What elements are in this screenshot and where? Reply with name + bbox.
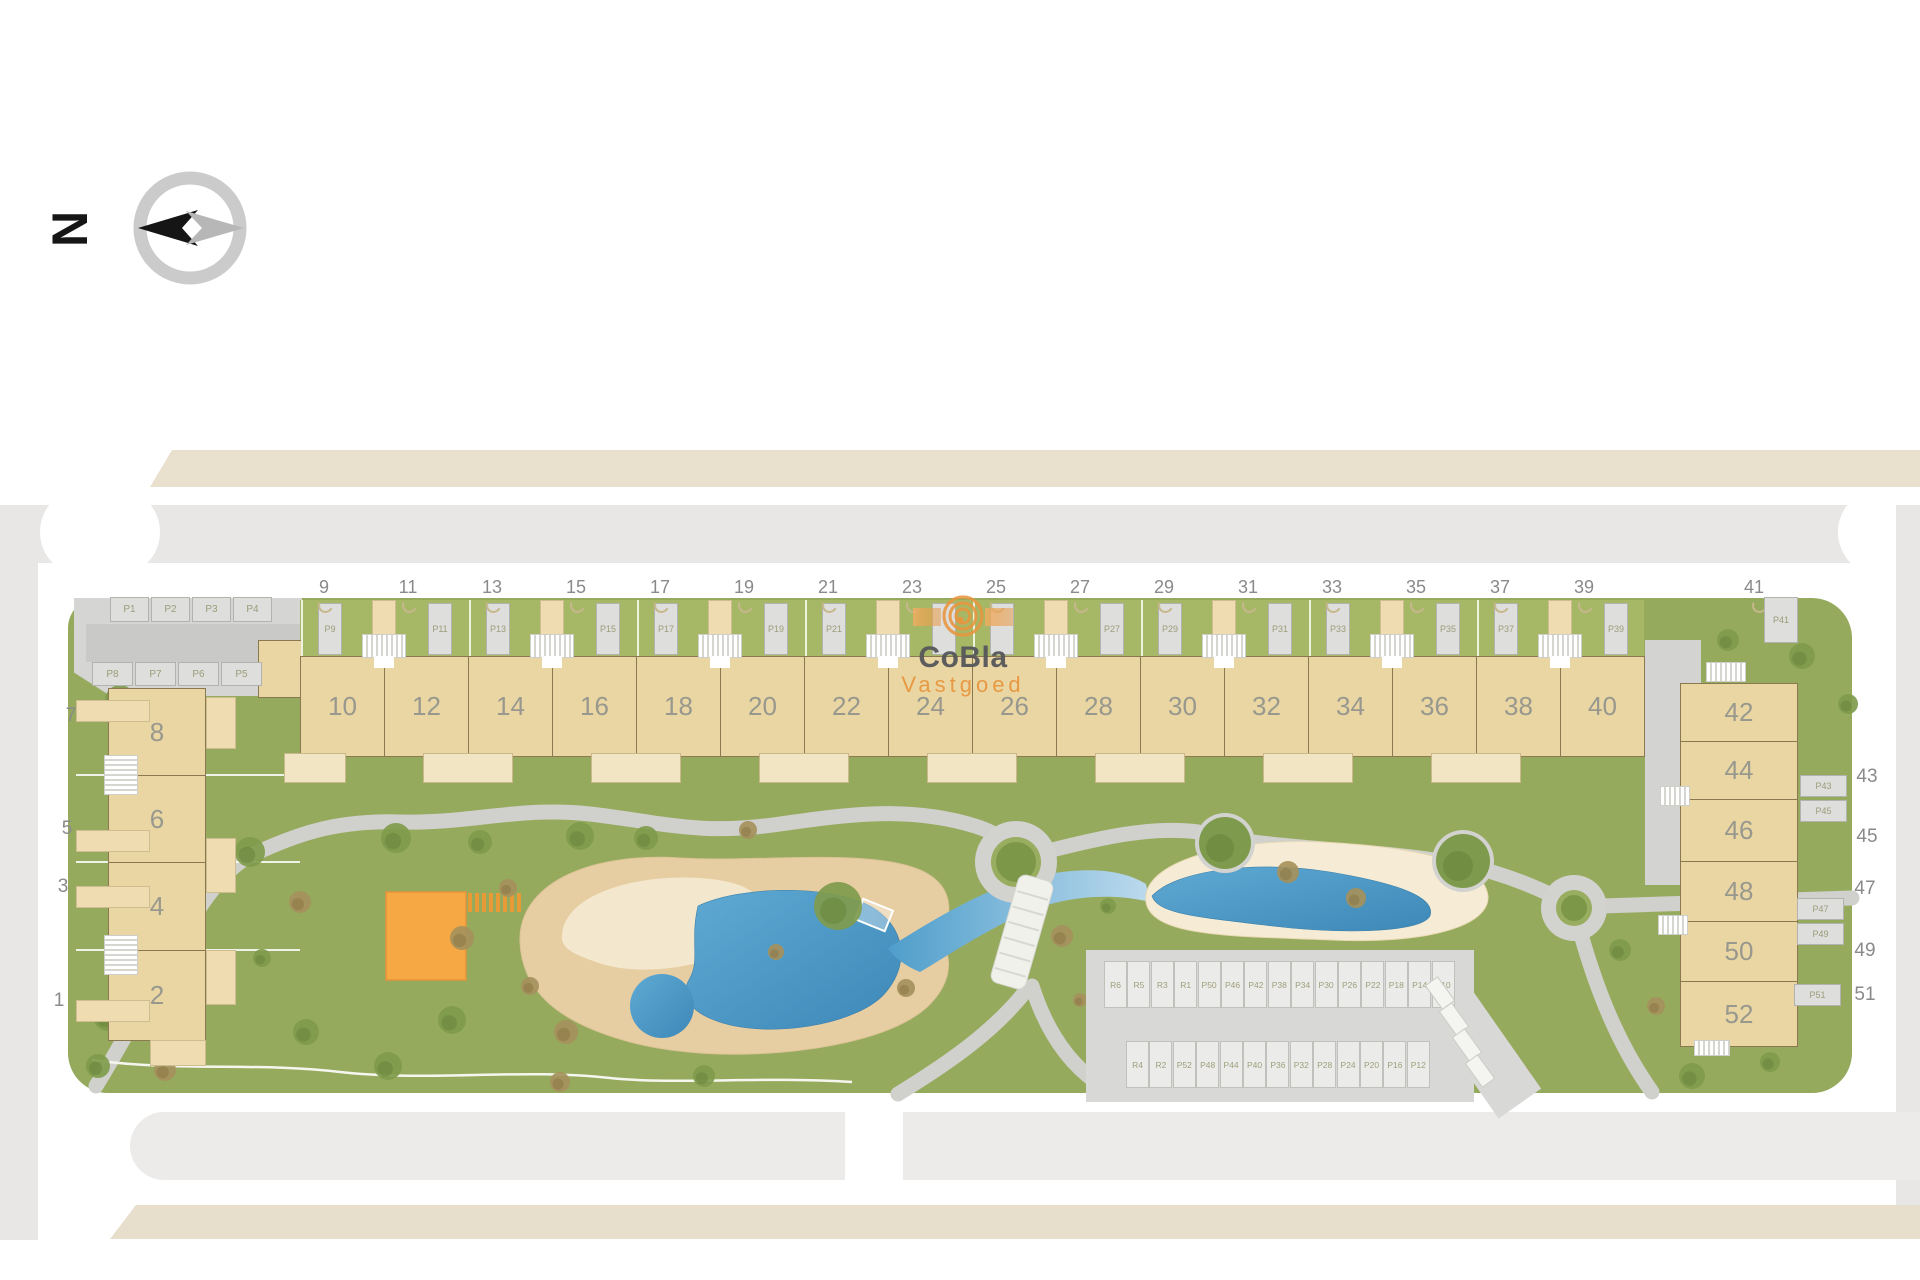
north-stair-cap-5 [1214, 656, 1234, 668]
north-stairs-2 [698, 634, 742, 658]
parking-slot-P50: P50 [1198, 961, 1221, 1008]
north-stair-cap-7 [1550, 656, 1570, 668]
parking-slot-P7: P7 [135, 662, 176, 686]
street-number-49: 49 [1850, 940, 1880, 962]
parking-slot-P16: P16 [1383, 1041, 1406, 1088]
building-unit-52: 52 [1680, 981, 1798, 1047]
street-number-9: 9 [302, 577, 346, 598]
parking-slot-P40: P40 [1243, 1041, 1266, 1088]
street-number-21: 21 [806, 577, 850, 598]
street-number-31: 31 [1226, 577, 1270, 598]
parking-slot-P4: P4 [233, 597, 272, 622]
north-stairs-5 [1202, 634, 1246, 658]
building-unit-44: 44 [1680, 741, 1798, 800]
parking-slot-P48: P48 [1196, 1041, 1219, 1088]
north-stair-cap-0 [374, 656, 394, 668]
north-stairs-1 [530, 634, 574, 658]
building-unit-48: 48 [1680, 861, 1798, 922]
building-unit-30: 30 [1140, 656, 1225, 757]
street-number-5: 5 [56, 818, 78, 840]
north-stair-cap-6 [1382, 656, 1402, 668]
parking-slot-R4: R4 [1126, 1041, 1149, 1088]
parking-slot-P6: P6 [178, 662, 219, 686]
street-number-29: 29 [1142, 577, 1186, 598]
parking-slot-P2: P2 [151, 597, 190, 622]
parking-slot-P11: P11 [428, 603, 452, 655]
street-number-15: 15 [554, 577, 598, 598]
parking-slot-P30: P30 [1315, 961, 1338, 1008]
west-stairs-1 [104, 935, 138, 975]
parking-slot-P22: P22 [1361, 961, 1384, 1008]
building-unit-40: 40 [1560, 656, 1645, 757]
rear-extension-5 [1263, 753, 1353, 783]
north-stair-cap-4 [1046, 656, 1066, 668]
street-number-11: 11 [386, 577, 430, 598]
parking-slot-P24: P24 [1337, 1041, 1360, 1088]
street-number-39: 39 [1562, 577, 1606, 598]
parking-slot-P46: P46 [1221, 961, 1244, 1008]
north-stairs-4 [1034, 634, 1078, 658]
street-number-41: 41 [1734, 577, 1774, 598]
parking-slot-P49: P49 [1797, 923, 1844, 945]
north-stair-cap-1 [542, 656, 562, 668]
parking-slot-P18: P18 [1385, 961, 1408, 1008]
north-stair-cap-3 [878, 656, 898, 668]
west-entry-bar-0 [76, 700, 150, 722]
street-number-33: 33 [1310, 577, 1354, 598]
street-number-47: 47 [1850, 878, 1880, 900]
street-number-37: 37 [1478, 577, 1522, 598]
parking-slot-P20: P20 [1360, 1041, 1383, 1088]
parking-slot-P43: P43 [1800, 775, 1847, 797]
building-unit-12: 12 [384, 656, 469, 757]
cobla-logo-icon [901, 594, 1025, 638]
rear-extension-2 [759, 753, 849, 783]
street-number-3: 3 [52, 876, 74, 898]
west-entry-bar-2 [76, 886, 150, 908]
parking-slot-P34: P34 [1291, 961, 1314, 1008]
street-number-51: 51 [1850, 984, 1880, 1006]
north-stairs-0 [362, 634, 406, 658]
parking-slot-P5: P5 [221, 662, 262, 686]
parking-slot-P36: P36 [1266, 1041, 1289, 1088]
parking-slot-P1: P1 [110, 597, 149, 622]
north-stairs-7 [1538, 634, 1582, 658]
rear-extension-1 [591, 753, 681, 783]
street-number-17: 17 [638, 577, 682, 598]
building-unit-38: 38 [1476, 656, 1561, 757]
parking-slot-P45: P45 [1800, 800, 1847, 822]
building-unit-10: 10 [300, 656, 385, 757]
parking-slot-P35: P35 [1436, 603, 1460, 655]
building-unit-32: 32 [1224, 656, 1309, 757]
parking-slot-P38: P38 [1268, 961, 1291, 1008]
street-number-35: 35 [1394, 577, 1438, 598]
west-annex-2 [206, 950, 236, 1005]
west-entry-bar-3 [76, 1000, 150, 1022]
parking-slot-P42: P42 [1244, 961, 1267, 1008]
parking-slot-P32: P32 [1290, 1041, 1313, 1088]
street-number-27: 27 [1058, 577, 1102, 598]
parking-slot-P44: P44 [1220, 1041, 1243, 1088]
rear-extension-6 [1431, 753, 1521, 783]
east-stairs-3 [1694, 1040, 1730, 1056]
building-unit-46: 46 [1680, 799, 1798, 862]
angled-stall-3 [1465, 1054, 1496, 1088]
west-annex-0 [206, 697, 236, 749]
street-number-7: 7 [60, 705, 82, 727]
site-plan-canvas: P1P2P3P4P8P7P6P586427531P9109P111211P131… [0, 0, 1920, 1280]
parking-slot-P41: P41 [1764, 597, 1798, 643]
building-unit-22: 22 [804, 656, 889, 757]
parking-slot-P51: P51 [1794, 984, 1841, 1006]
rear-extension-4 [1095, 753, 1185, 783]
building-unit-18: 18 [636, 656, 721, 757]
building-unit-16: 16 [552, 656, 637, 757]
watermark-subtitle: Vastgoed [898, 673, 1028, 697]
parking-slot-P28: P28 [1313, 1041, 1336, 1088]
parking-slot-P19: P19 [764, 603, 788, 655]
parking-slot-P52: P52 [1173, 1041, 1196, 1088]
parking-slot-P3: P3 [192, 597, 231, 622]
parking-slot-R6: R6 [1104, 961, 1127, 1008]
street-number-13: 13 [470, 577, 514, 598]
parking-slot-P31: P31 [1268, 603, 1292, 655]
building-unit-42: 42 [1680, 683, 1798, 742]
watermark-brand: CoBla [898, 643, 1028, 673]
north-stair-cap-2 [710, 656, 730, 668]
parking-slot-P15: P15 [596, 603, 620, 655]
street-number-45: 45 [1852, 826, 1882, 848]
parking-slot-R3: R3 [1151, 961, 1174, 1008]
developer-watermark: CoBla Vastgoed [898, 594, 1028, 697]
east-stairs-2 [1658, 915, 1688, 935]
parking-slot-P27: P27 [1100, 603, 1124, 655]
west-stairs-0 [104, 755, 138, 795]
east-stairs-1 [1660, 786, 1690, 806]
parking-slot-R5: R5 [1127, 961, 1150, 1008]
parking-slot-R1: R1 [1174, 961, 1197, 1008]
west-entry-bar-1 [76, 830, 150, 852]
street-number-19: 19 [722, 577, 766, 598]
parking-slot-P26: P26 [1338, 961, 1361, 1008]
building-unit-50: 50 [1680, 921, 1798, 982]
parking-slot-P47: P47 [1797, 898, 1844, 920]
north-stairs-6 [1370, 634, 1414, 658]
building-unit-36: 36 [1392, 656, 1477, 757]
street-number-1: 1 [48, 990, 70, 1012]
street-number-43: 43 [1852, 766, 1882, 788]
west-annex-1 [206, 838, 236, 893]
parking-slot-P39: P39 [1604, 603, 1628, 655]
east-stairs-0 [1706, 662, 1746, 682]
rear-extension-0 [423, 753, 513, 783]
parking-slot-P12: P12 [1407, 1041, 1430, 1088]
building-unit-34: 34 [1308, 656, 1393, 757]
building-unit-14: 14 [468, 656, 553, 757]
building-unit-20: 20 [720, 656, 805, 757]
parking-slot-P8: P8 [92, 662, 133, 686]
west-annex-3 [150, 1040, 206, 1066]
building-unit-28: 28 [1056, 656, 1141, 757]
rear-extension-left [284, 753, 346, 783]
rear-extension-3 [927, 753, 1017, 783]
parking-slot-R2: R2 [1149, 1041, 1172, 1088]
